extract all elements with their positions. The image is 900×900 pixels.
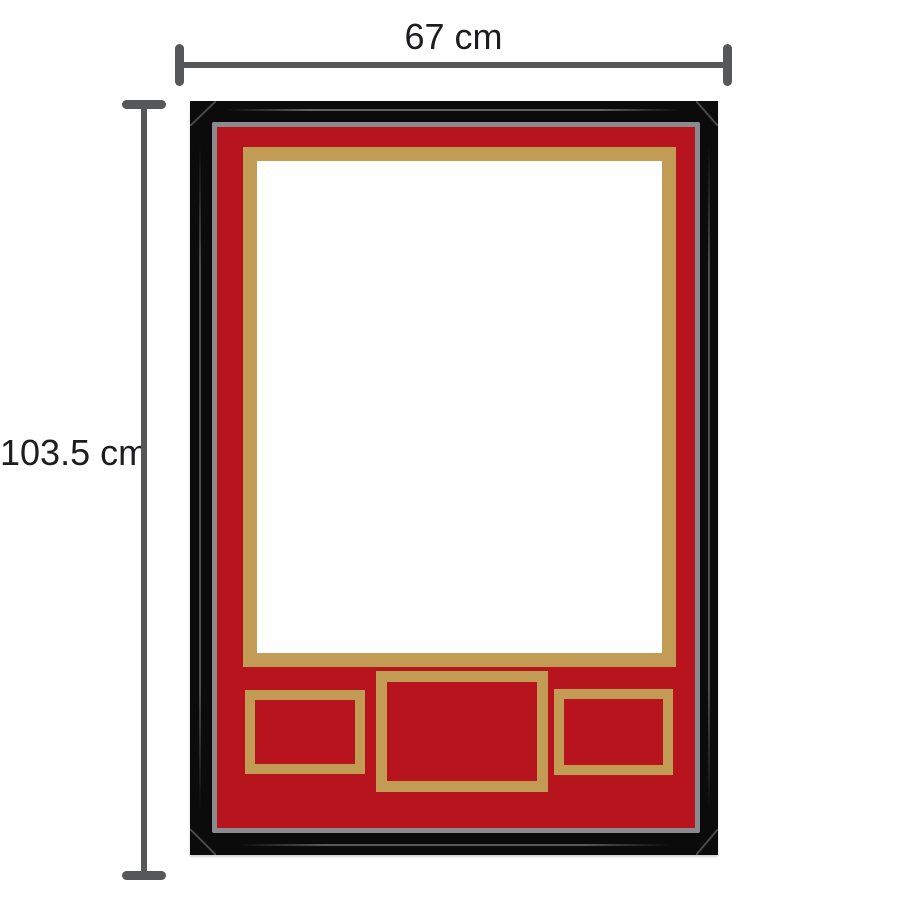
width-measurement-line: [179, 62, 728, 68]
bottom-opening-center: [376, 671, 548, 792]
height-measurement-top-cap: [122, 100, 166, 109]
picture-frame: [190, 101, 718, 855]
width-measurement-label: 67 cm: [179, 17, 728, 57]
bottom-opening-left: [245, 690, 365, 774]
main-photo-opening: [243, 147, 676, 667]
height-measurement-bottom-cap: [122, 871, 166, 880]
red-mat-board: [217, 127, 695, 828]
width-measurement-right-cap: [723, 44, 732, 86]
height-measurement-line: [141, 104, 147, 876]
frame-dimensions-diagram: 67 cm 103.5 cm: [0, 0, 900, 900]
frame-silver-liner: [212, 122, 700, 833]
frame-sheen-left: [199, 146, 201, 810]
width-measurement-left-cap: [175, 44, 184, 86]
frame-sheen-right: [708, 146, 710, 810]
bottom-opening-right: [554, 689, 673, 775]
height-measurement-label: 103.5 cm: [0, 433, 139, 473]
frame-sheen-bottom: [238, 844, 671, 846]
frame-sheen-top: [227, 109, 681, 111]
